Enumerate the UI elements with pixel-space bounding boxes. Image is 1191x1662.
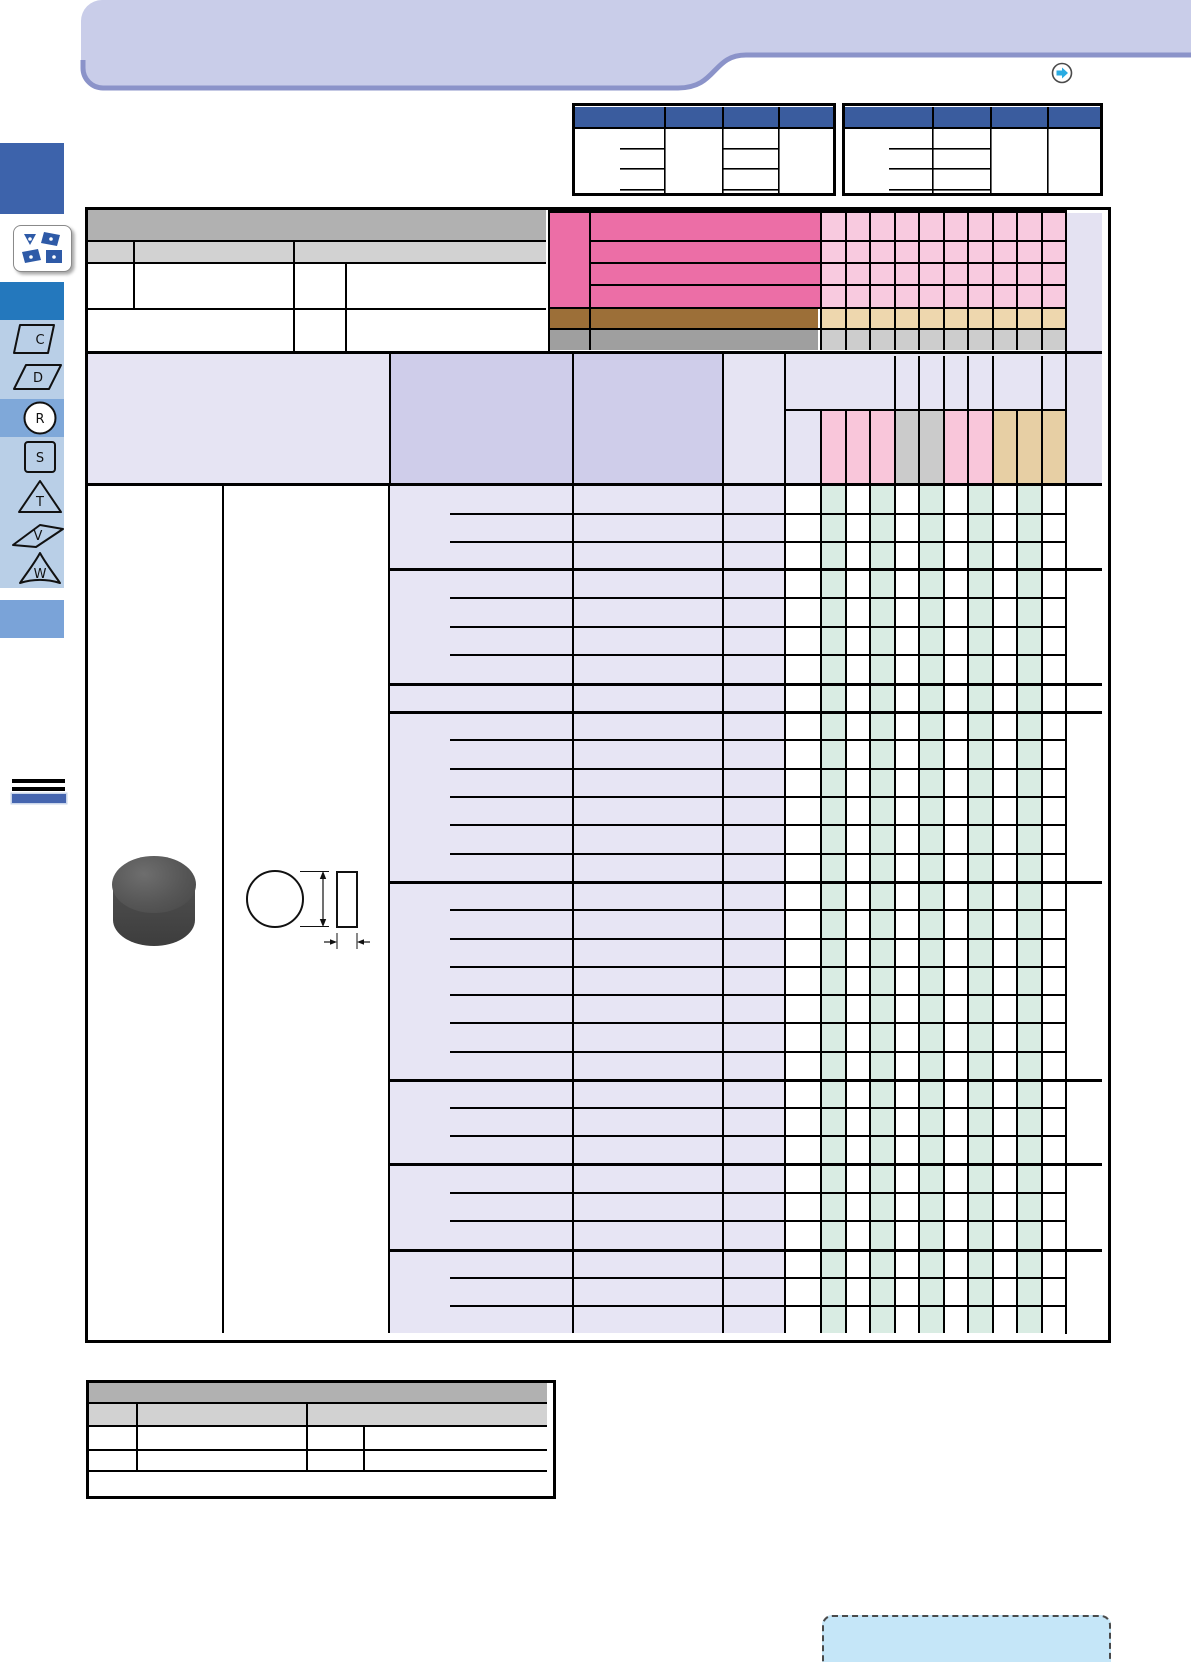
catalog-page: C D R S T V W (0, 0, 1191, 1662)
bottom-table-border (86, 1380, 556, 1499)
main-table-border (85, 207, 1111, 1343)
